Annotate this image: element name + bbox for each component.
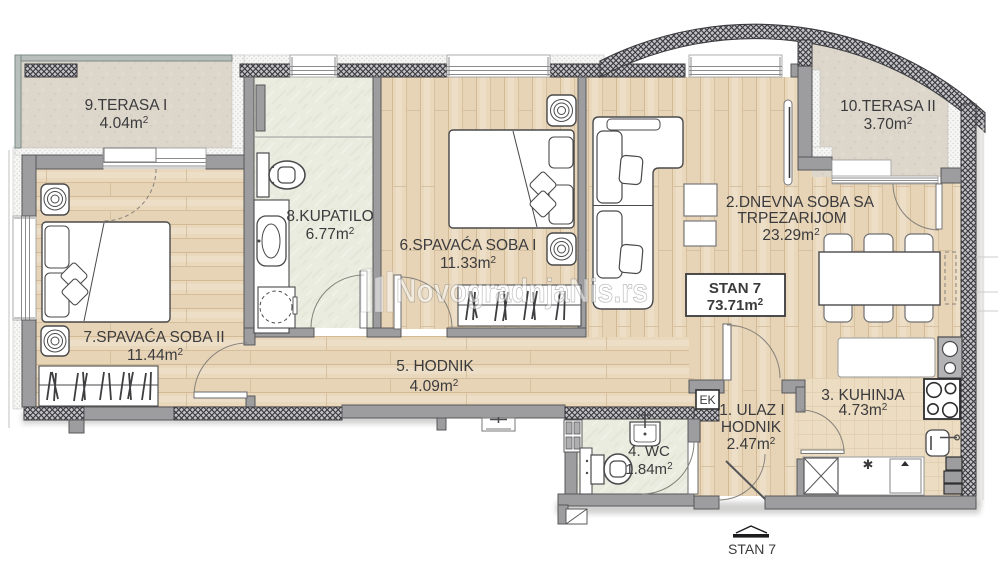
svg-text:EK: EK <box>699 393 715 407</box>
svg-text:10.TERASA II: 10.TERASA II <box>840 98 936 115</box>
svg-text:4. WC: 4. WC <box>628 443 670 460</box>
svg-text:6.77m2: 6.77m2 <box>306 226 355 243</box>
svg-text:4.04m2: 4.04m2 <box>100 115 149 132</box>
svg-text:73.71m2: 73.71m2 <box>707 297 764 314</box>
svg-text:NovogradnjaNis.rs: NovogradnjaNis.rs <box>396 272 648 309</box>
svg-text:1. ULAZ I: 1. ULAZ I <box>719 402 784 419</box>
svg-text:2.47m2: 2.47m2 <box>727 436 776 453</box>
svg-text:5. HODNIK: 5. HODNIK <box>396 358 474 375</box>
svg-text:23.29m2: 23.29m2 <box>762 227 820 244</box>
svg-text:HODNIK: HODNIK <box>721 419 782 436</box>
svg-text:11.44m2: 11.44m2 <box>127 347 184 364</box>
svg-text:1.84m2: 1.84m2 <box>625 461 673 478</box>
svg-text:STAN 7: STAN 7 <box>728 541 776 557</box>
svg-text:9.TERASA I: 9.TERASA I <box>85 97 168 114</box>
svg-text:STAN 7: STAN 7 <box>709 280 761 297</box>
svg-text:✱: ✱ <box>863 457 874 472</box>
svg-text:6.SPAVAĆA SOBA I: 6.SPAVAĆA SOBA I <box>400 237 537 254</box>
svg-text:4.09m2: 4.09m2 <box>410 378 459 395</box>
svg-text:3.70m2: 3.70m2 <box>864 116 913 133</box>
svg-text:2.DNEVNA SOBA SA: 2.DNEVNA SOBA SA <box>726 194 875 211</box>
svg-text:11.33m2: 11.33m2 <box>440 255 497 272</box>
svg-text:4.73m2: 4.73m2 <box>839 402 888 419</box>
svg-text:8.KUPATILO: 8.KUPATILO <box>286 208 373 225</box>
svg-text:7.SPAVAĆA SOBA II: 7.SPAVAĆA SOBA II <box>83 329 224 346</box>
svg-text:TRPEZARIJOM: TRPEZARIJOM <box>737 210 846 227</box>
